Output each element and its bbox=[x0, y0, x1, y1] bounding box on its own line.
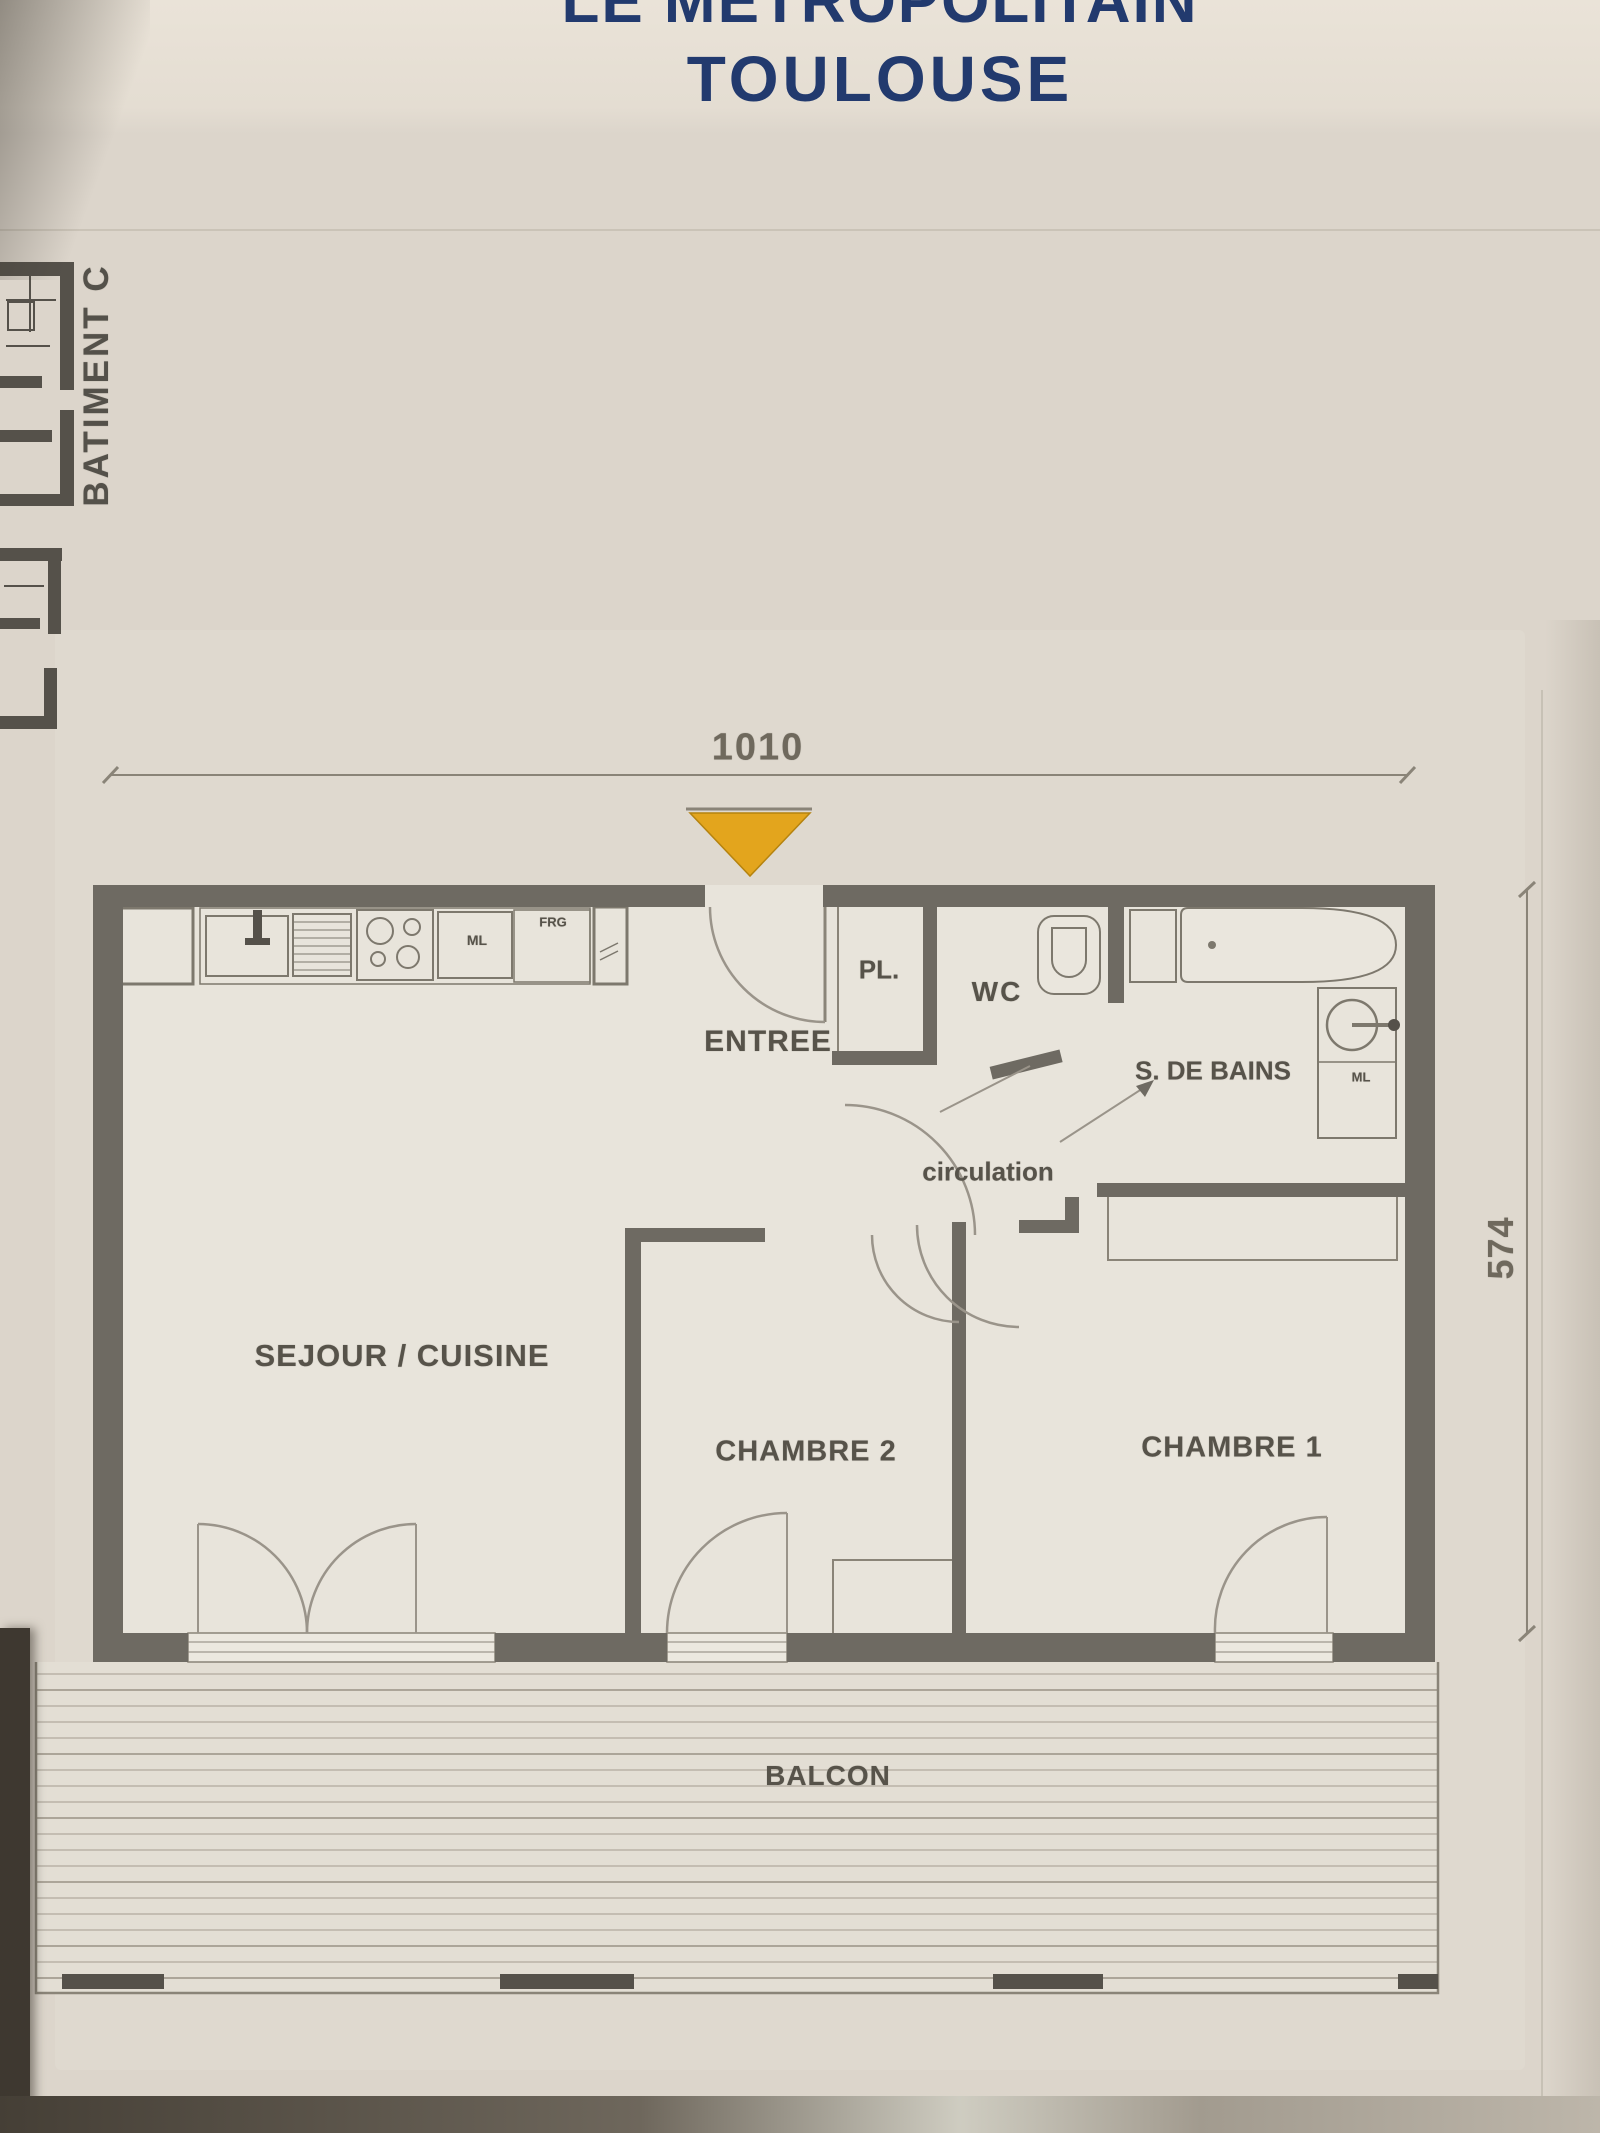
room-label-wc: WC bbox=[972, 976, 1023, 1008]
room-label-bedroom2: CHAMBRE 2 bbox=[715, 1436, 896, 1469]
entry-marker bbox=[686, 809, 812, 876]
project-title-line2: TOULOUSE bbox=[687, 42, 1073, 116]
wall-top-right bbox=[823, 885, 1435, 907]
room-label-bathroom: S. DE BAINS bbox=[1135, 1056, 1291, 1087]
bedroom2-window bbox=[667, 1633, 787, 1662]
key-plan-fragments bbox=[0, 262, 74, 729]
wall-bottom-3 bbox=[787, 1633, 1215, 1662]
wall-bottom-2 bbox=[495, 1633, 667, 1662]
bedroom1-window bbox=[1215, 1633, 1333, 1662]
floor-plan-photo: LE METROPOLITAIN TOULOUSE BATIMENT C 101… bbox=[0, 0, 1600, 2133]
room-label-bedroom1: CHAMBRE 1 bbox=[1141, 1432, 1322, 1465]
balcony-deck bbox=[36, 1662, 1438, 1993]
apartment-interior-fill bbox=[93, 885, 1435, 1662]
wall-bathroom-bottom bbox=[1097, 1183, 1405, 1197]
paper-edge-line bbox=[1541, 690, 1543, 2096]
photo-shadow-top-left bbox=[0, 0, 150, 280]
bedroom1-door-leaf bbox=[1019, 1220, 1065, 1233]
appliance-label-fridge: FRG bbox=[539, 915, 566, 930]
wall-closet-right bbox=[923, 907, 937, 1065]
project-title-line1: LE METROPOLITAIN bbox=[561, 0, 1198, 37]
wall-top-left bbox=[93, 885, 705, 907]
building-label: BATIMENT C bbox=[77, 263, 117, 506]
photo-shadow-left-strip bbox=[0, 1628, 30, 2133]
wall-bedroom2-top bbox=[625, 1228, 765, 1242]
wall-bottom-4 bbox=[1333, 1633, 1405, 1662]
dimension-width-value: 1010 bbox=[712, 727, 805, 770]
wall-left bbox=[93, 885, 123, 1662]
photo-shadow-bottom-strip bbox=[0, 2096, 1600, 2133]
paper-right-edge-shade bbox=[1545, 620, 1600, 2133]
dimension-depth-value: 574 bbox=[1480, 1216, 1522, 1279]
wall-closet-bottom bbox=[832, 1051, 937, 1065]
room-label-living-kitchen: SEJOUR / CUISINE bbox=[254, 1338, 549, 1374]
wall-bottom-1 bbox=[123, 1633, 188, 1662]
wall-jog bbox=[1065, 1197, 1079, 1233]
entry-triangle-icon bbox=[690, 813, 810, 876]
wall-bedroom1-bedroom2 bbox=[952, 1222, 966, 1633]
room-label-hallway: circulation bbox=[922, 1157, 1053, 1188]
wall-wc-right bbox=[1108, 907, 1124, 1003]
appliance-label-kitchen-washer: ML bbox=[467, 932, 487, 948]
room-label-closet: PL. bbox=[859, 955, 899, 986]
living-window bbox=[188, 1633, 495, 1662]
room-label-balcony: BALCON bbox=[765, 1760, 891, 1792]
wall-right bbox=[1405, 885, 1435, 1662]
room-label-entry: ENTREE bbox=[704, 1025, 832, 1059]
toilet-icon bbox=[1038, 916, 1100, 994]
floor-plan-linework bbox=[0, 0, 1600, 2133]
appliance-label-bath-washer: ML bbox=[1352, 1070, 1371, 1085]
wall-living-bedroom2 bbox=[625, 1228, 641, 1633]
